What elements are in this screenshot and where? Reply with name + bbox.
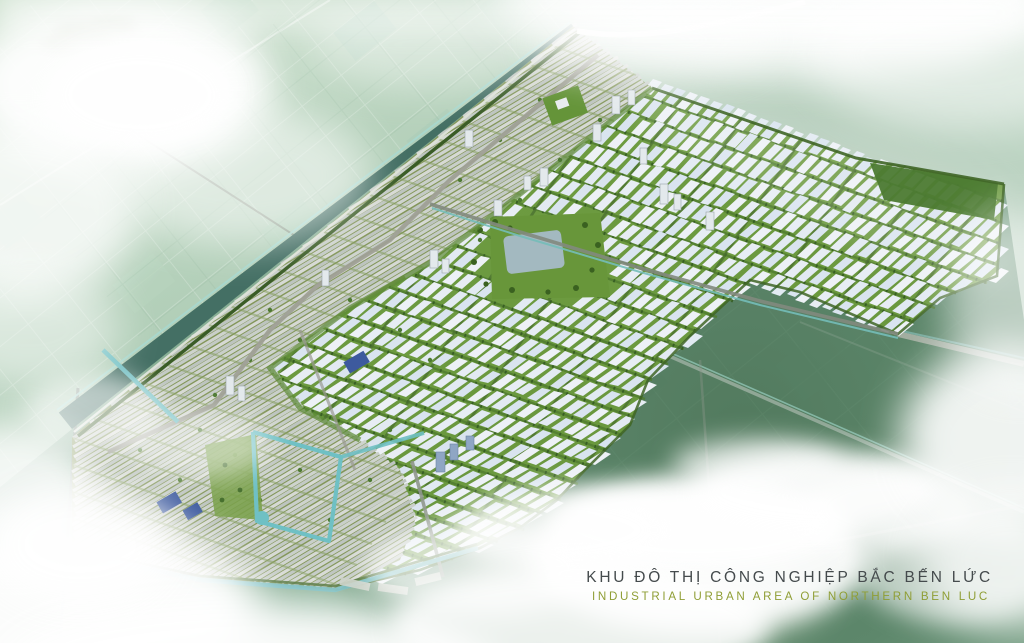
svg-text:KHU ĐÔ THỊ CÔNG NGHIỆP BẮC BẾN: KHU ĐÔ THỊ CÔNG NGHIỆP BẮC BẾN LỨC bbox=[586, 568, 993, 586]
svg-text:INDUSTRIAL URBAN AREA OF NORTH: INDUSTRIAL URBAN AREA OF NORTHERN BEN LU… bbox=[592, 590, 990, 603]
